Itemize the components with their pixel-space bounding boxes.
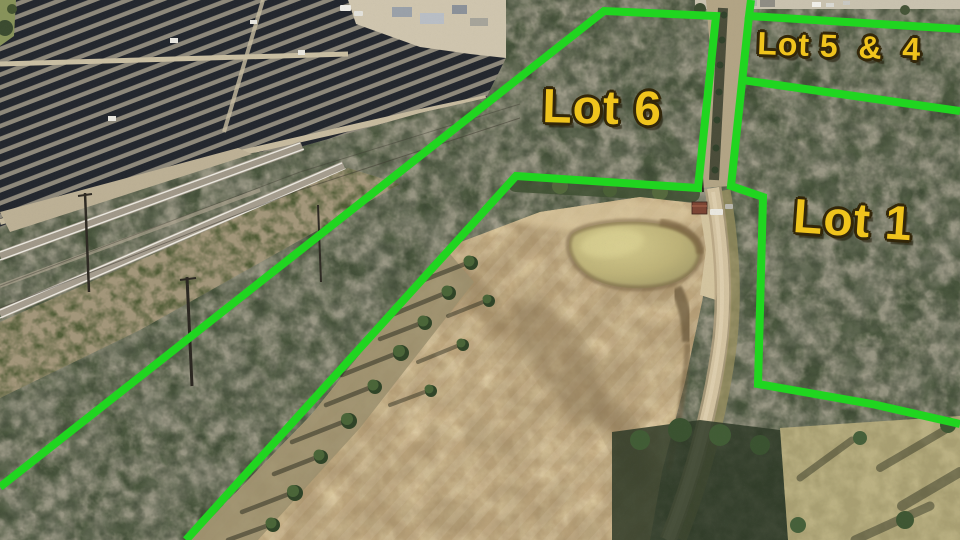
aerial-photo-scene	[0, 0, 960, 540]
lot-1-label: Lot 1	[792, 193, 915, 249]
aerial-photo: Lot 6 Lot 5 & 4 Lot 1	[0, 0, 960, 540]
lot-5-4-label: Lot 5 & 4	[757, 27, 922, 65]
grain	[0, 0, 960, 540]
lot-6-label: Lot 6	[542, 83, 663, 134]
